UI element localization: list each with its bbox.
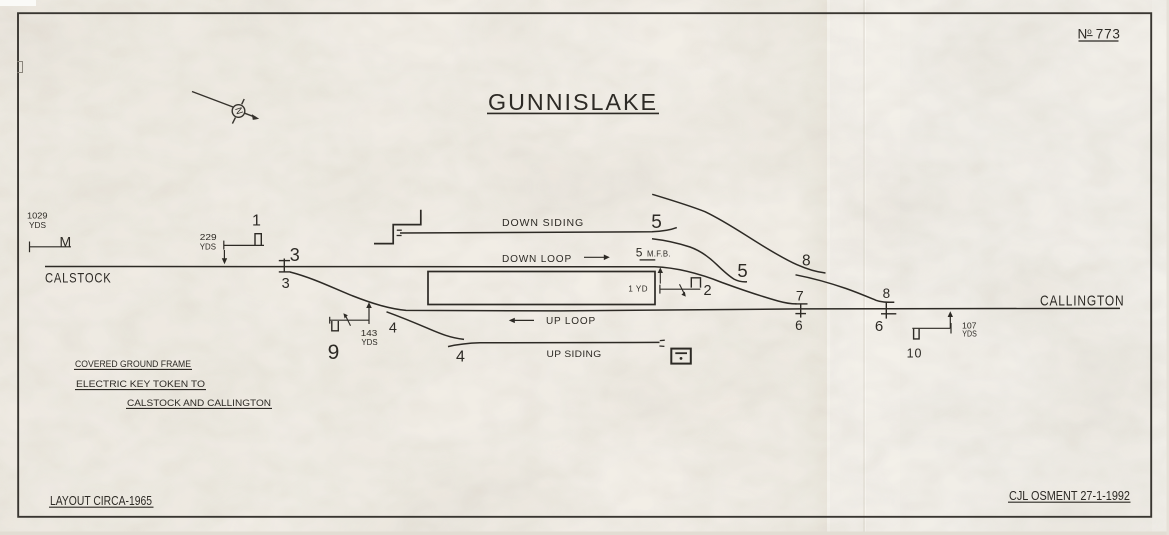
- svg-text:6: 6: [875, 318, 883, 335]
- svg-text:2: 2: [703, 283, 711, 299]
- svg-text:GUNNISLAKE: GUNNISLAKE: [488, 89, 658, 115]
- svg-text:7: 7: [796, 288, 804, 304]
- svg-text:CALSTOCK: CALSTOCK: [45, 269, 112, 285]
- svg-text:8: 8: [883, 286, 891, 301]
- svg-text:8: 8: [802, 253, 811, 270]
- svg-text:1 YD: 1 YD: [628, 285, 648, 294]
- svg-text:M.F.B.: M.F.B.: [647, 249, 671, 258]
- svg-text:COVERED GROUND FRAME: COVERED GROUND FRAME: [75, 359, 191, 369]
- svg-text:143: 143: [361, 329, 378, 338]
- svg-text:YDS: YDS: [361, 338, 377, 347]
- svg-text:5: 5: [636, 245, 643, 259]
- svg-text:ELECTRIC KEY TOKEN TO: ELECTRIC KEY TOKEN TO: [76, 379, 205, 389]
- svg-text:YDS: YDS: [962, 330, 977, 339]
- svg-text:4: 4: [389, 321, 397, 337]
- svg-text:LAYOUT CIRCA-1965: LAYOUT CIRCA-1965: [50, 493, 152, 508]
- svg-text:5: 5: [651, 212, 662, 233]
- svg-text:1029: 1029: [27, 211, 48, 221]
- svg-text:N: N: [1078, 27, 1088, 42]
- svg-text:YDS: YDS: [29, 220, 46, 230]
- svg-text:4: 4: [456, 349, 465, 366]
- svg-text:CJL OSMENT 27-1-1992: CJL OSMENT 27-1-1992: [1009, 488, 1130, 503]
- svg-text:UP LOOP: UP LOOP: [546, 316, 596, 327]
- svg-text:UP SIDING: UP SIDING: [547, 349, 602, 359]
- svg-text:DOWN SIDING: DOWN SIDING: [502, 218, 584, 229]
- svg-text:3: 3: [290, 245, 300, 265]
- svg-text:6: 6: [795, 318, 803, 333]
- svg-text:1: 1: [252, 213, 261, 230]
- svg-text:5: 5: [737, 260, 747, 281]
- svg-text:DOWN LOOP: DOWN LOOP: [502, 254, 572, 265]
- svg-text:773: 773: [1096, 27, 1121, 42]
- svg-text:9: 9: [328, 341, 340, 364]
- svg-text:10: 10: [907, 347, 923, 361]
- svg-text:o: o: [1087, 27, 1092, 36]
- svg-text:CALLINGTON: CALLINGTON: [1040, 293, 1125, 309]
- svg-text:YDS: YDS: [200, 241, 216, 251]
- svg-text:M: M: [60, 234, 72, 250]
- svg-text:3: 3: [282, 276, 290, 292]
- svg-text:CALSTOCK AND CALLINGTON: CALSTOCK AND CALLINGTON: [127, 398, 271, 409]
